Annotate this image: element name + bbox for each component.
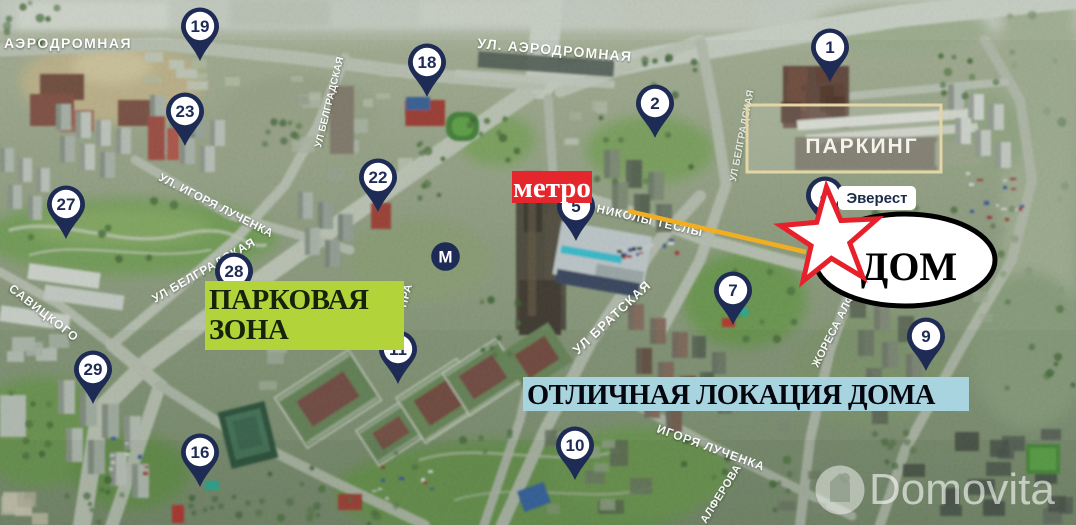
svg-text:19: 19 (191, 17, 210, 36)
svg-text:16: 16 (191, 443, 210, 462)
svg-text:1: 1 (825, 38, 834, 57)
svg-text:ПАРКОВАЯ: ПАРКОВАЯ (209, 284, 369, 316)
svg-text:7: 7 (728, 281, 737, 300)
svg-text:22: 22 (369, 168, 388, 187)
svg-text:23: 23 (176, 102, 195, 121)
svg-text:10: 10 (566, 436, 585, 455)
svg-text:ЗОНА: ЗОНА (209, 314, 289, 346)
svg-text:метро: метро (513, 172, 591, 204)
svg-text:27: 27 (57, 195, 76, 214)
svg-text:2: 2 (650, 94, 659, 113)
svg-text:ПАРКИНГ: ПАРКИНГ (805, 135, 918, 158)
svg-text:ДОМ: ДОМ (861, 244, 957, 289)
svg-text:Эверест: Эверест (846, 190, 907, 207)
svg-text:ОТЛИЧНАЯ ЛОКАЦИЯ ДОМА: ОТЛИЧНАЯ ЛОКАЦИЯ ДОМА (527, 380, 936, 411)
svg-text:9: 9 (921, 327, 930, 346)
svg-text:Domovita: Domovita (869, 465, 1055, 514)
svg-text:М: М (438, 248, 452, 267)
svg-text:28: 28 (225, 262, 244, 281)
svg-text:29: 29 (84, 360, 103, 379)
svg-text:18: 18 (418, 53, 437, 72)
svg-text:АЭРОДРОМНАЯ: АЭРОДРОМНАЯ (4, 35, 132, 51)
